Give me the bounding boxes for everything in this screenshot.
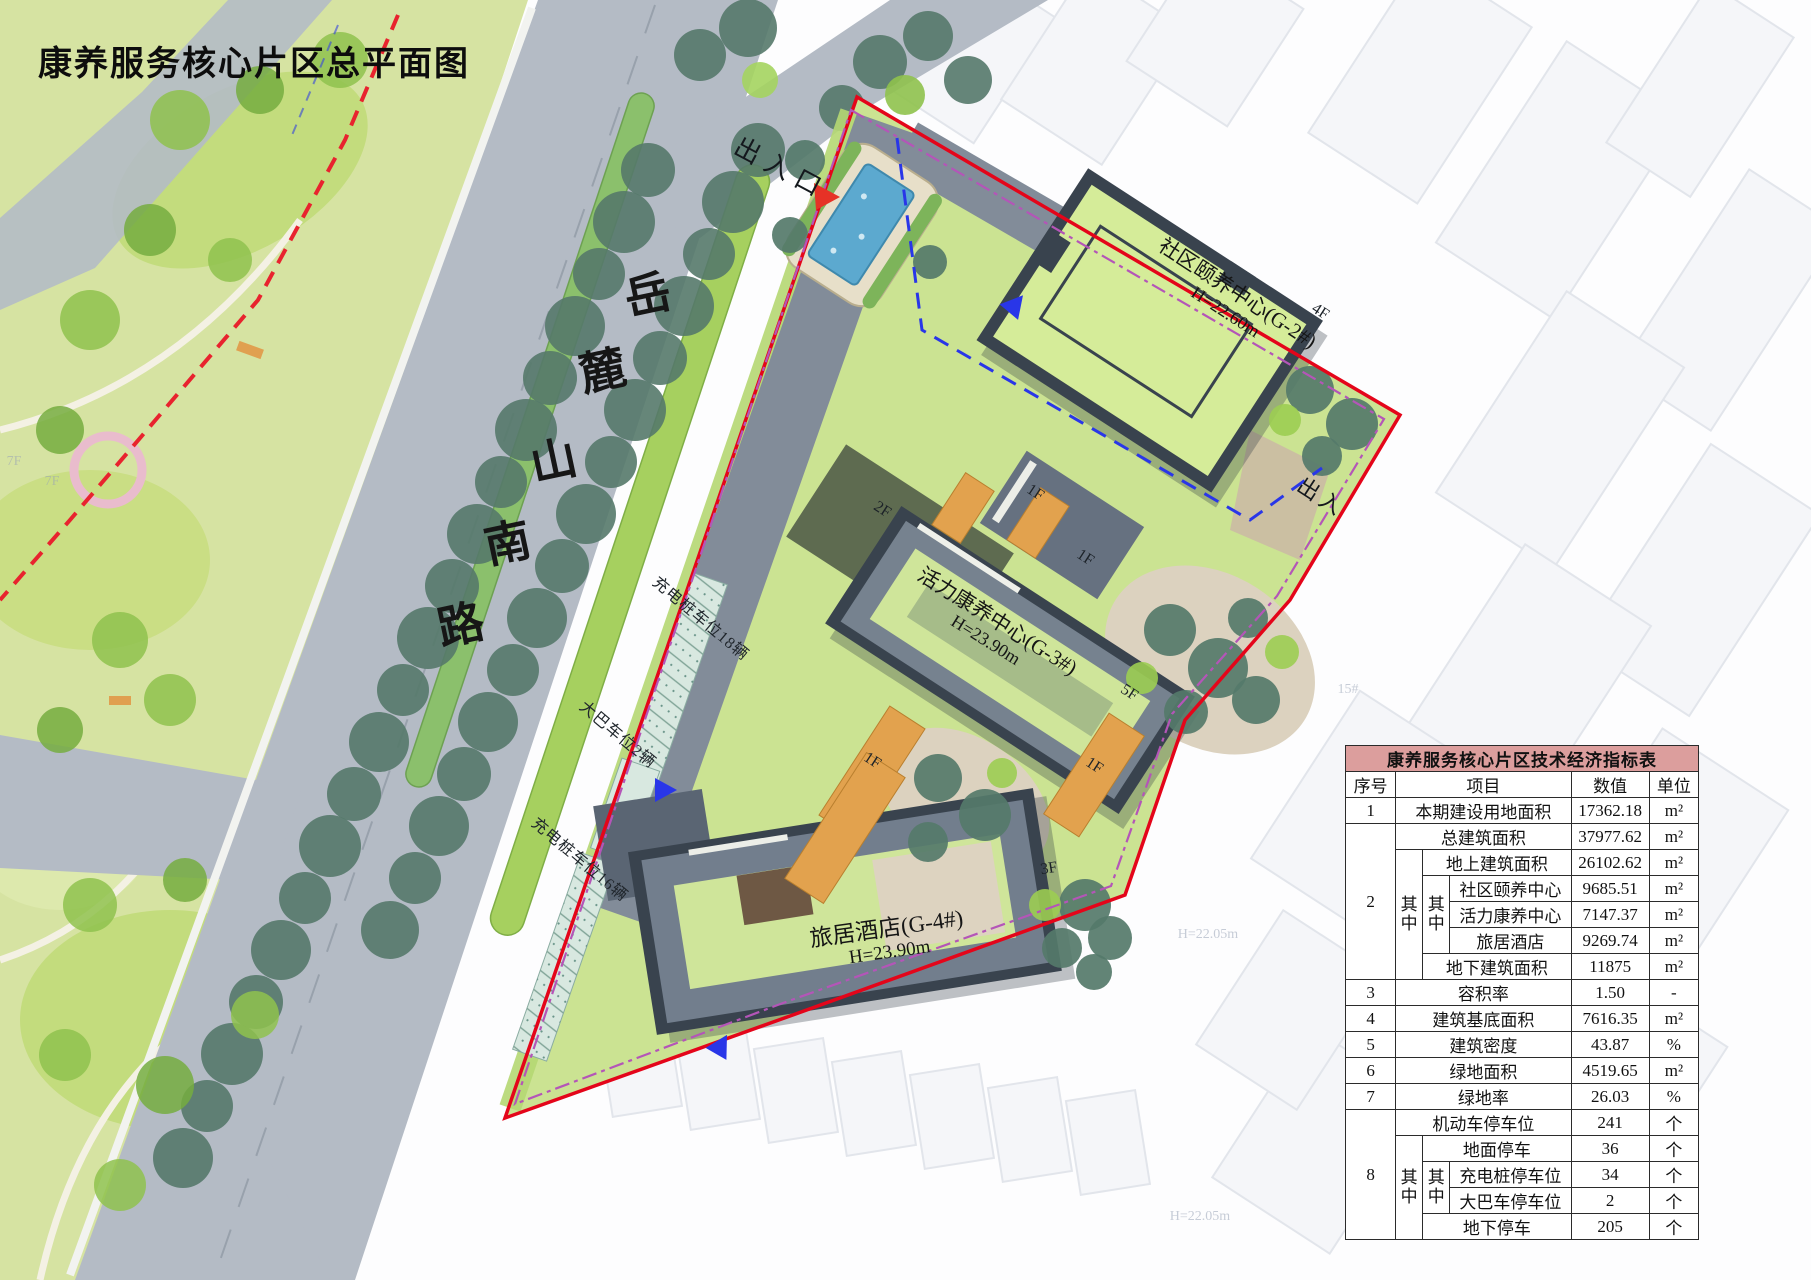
ghost-label: H=22.05m [1170,1209,1230,1225]
table-row: 6绿地面积4519.65m² [1346,1058,1699,1084]
col-header-value: 数值 [1571,772,1649,798]
table-title: 康养服务核心片区技术经济指标表 [1346,746,1699,772]
page-title: 康养服务核心片区总平面图 [38,36,470,85]
ghost-label: H=22.05m [1178,927,1238,943]
col-header-no: 序号 [1346,772,1396,798]
table-row: 4建筑基底面积7616.35m² [1346,1006,1699,1032]
table-row: 3容积率1.50- [1346,980,1699,1006]
ghost-label: 15# [1338,682,1359,698]
ghost-label: 7F [7,454,22,470]
table-row: 其中地上建筑面积26102.62m² [1346,850,1699,876]
col-header-item: 项目 [1396,772,1571,798]
ghost-label: 7F [45,474,60,490]
site-plan-page: 康养服务核心片区总平面图 岳 麓 山 南 路 出入口 出入 充电桩车位18辆 大… [0,0,1811,1280]
table-row: 7绿地率26.03% [1346,1084,1699,1110]
building-g4-floors: 3F [1039,859,1059,879]
table-row: 8机动车停车位241个 [1346,1110,1699,1136]
indicator-table: 康养服务核心片区技术经济指标表 序号 项目 数值 单位 1本期建设用地面积173… [1345,745,1699,1240]
table-row: 1本期建设用地面积17362.18m² [1346,798,1699,824]
table-row: 5建筑密度43.87% [1346,1032,1699,1058]
table-row: 其中地面停车36个 [1346,1136,1699,1162]
col-header-unit: 单位 [1649,772,1698,798]
table-row: 2总建筑面积37977.62m² [1346,824,1699,850]
